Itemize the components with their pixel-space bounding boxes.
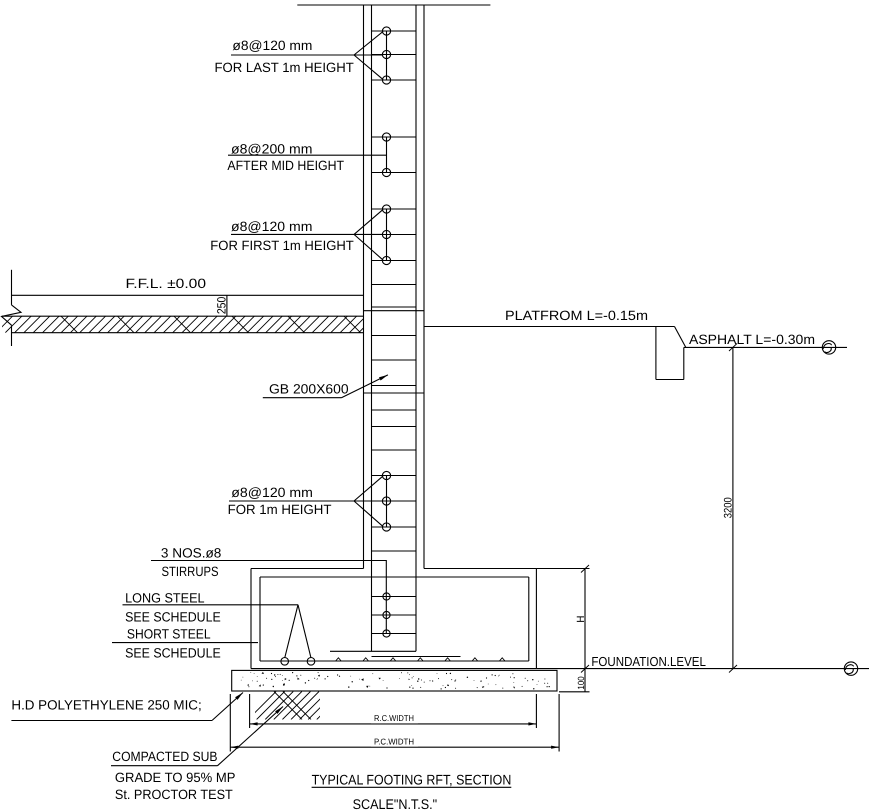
svg-text:GB 200X600: GB 200X600 <box>269 382 349 397</box>
svg-text:FOUNDATION.LEVEL: FOUNDATION.LEVEL <box>591 654 706 669</box>
svg-text:H.D POLYETHYLENE 250 MIC;: H.D POLYETHYLENE 250 MIC; <box>11 697 201 712</box>
svg-text:ASPHALT L=-0.30m: ASPHALT L=-0.30m <box>689 332 815 347</box>
svg-text:100: 100 <box>576 676 586 689</box>
svg-text:SEE SCHEDULE: SEE SCHEDULE <box>125 610 221 625</box>
svg-text:FOR FIRST 1m HEIGHT: FOR FIRST 1m HEIGHT <box>210 238 353 253</box>
svg-text:LONG STEEL: LONG STEEL <box>125 591 205 606</box>
svg-text:3200: 3200 <box>723 497 735 518</box>
svg-text:R.C.WIDTH: R.C.WIDTH <box>374 713 414 723</box>
svg-text:STIRRUPS: STIRRUPS <box>162 564 219 579</box>
svg-text:PLATFROM L=-0.15m: PLATFROM L=-0.15m <box>505 308 648 323</box>
svg-text:AFTER MID HEIGHT: AFTER MID HEIGHT <box>227 158 344 173</box>
svg-text:SHORT STEEL: SHORT STEEL <box>127 626 211 641</box>
svg-text:GRADE TO 95% MP: GRADE TO 95% MP <box>115 770 235 785</box>
svg-text:ø8@120 mm: ø8@120 mm <box>232 38 312 53</box>
svg-text:F.F.L. ±0.00: F.F.L. ±0.00 <box>126 276 207 291</box>
svg-text:St. PROCTOR TEST: St. PROCTOR TEST <box>115 787 233 802</box>
svg-text:P.C.WIDTH: P.C.WIDTH <box>374 736 414 746</box>
svg-text:FOR LAST 1m HEIGHT: FOR LAST 1m HEIGHT <box>215 60 354 75</box>
svg-text:TYPICAL FOOTING RFT, SECTIO: TYPICAL FOOTING RFT, SECTION <box>312 772 512 788</box>
svg-text:SEE SCHEDULE: SEE SCHEDULE <box>125 646 221 661</box>
svg-text:COMPACTED SUB: COMPACTED SUB <box>112 749 217 764</box>
svg-text:ø8@120 mm: ø8@120 mm <box>231 485 313 500</box>
svg-text:H: H <box>575 616 587 623</box>
svg-text:FOR 1m HEIGHT: FOR 1m HEIGHT <box>228 502 332 517</box>
svg-text:ø8@120 mm: ø8@120 mm <box>231 219 312 234</box>
svg-text:3 NOS.ø8: 3 NOS.ø8 <box>161 546 222 561</box>
svg-text:SCALE"N.T.S.": SCALE"N.T.S." <box>353 796 438 812</box>
svg-text:ø8@200 mm: ø8@200 mm <box>231 142 312 157</box>
svg-text:250: 250 <box>214 296 228 314</box>
